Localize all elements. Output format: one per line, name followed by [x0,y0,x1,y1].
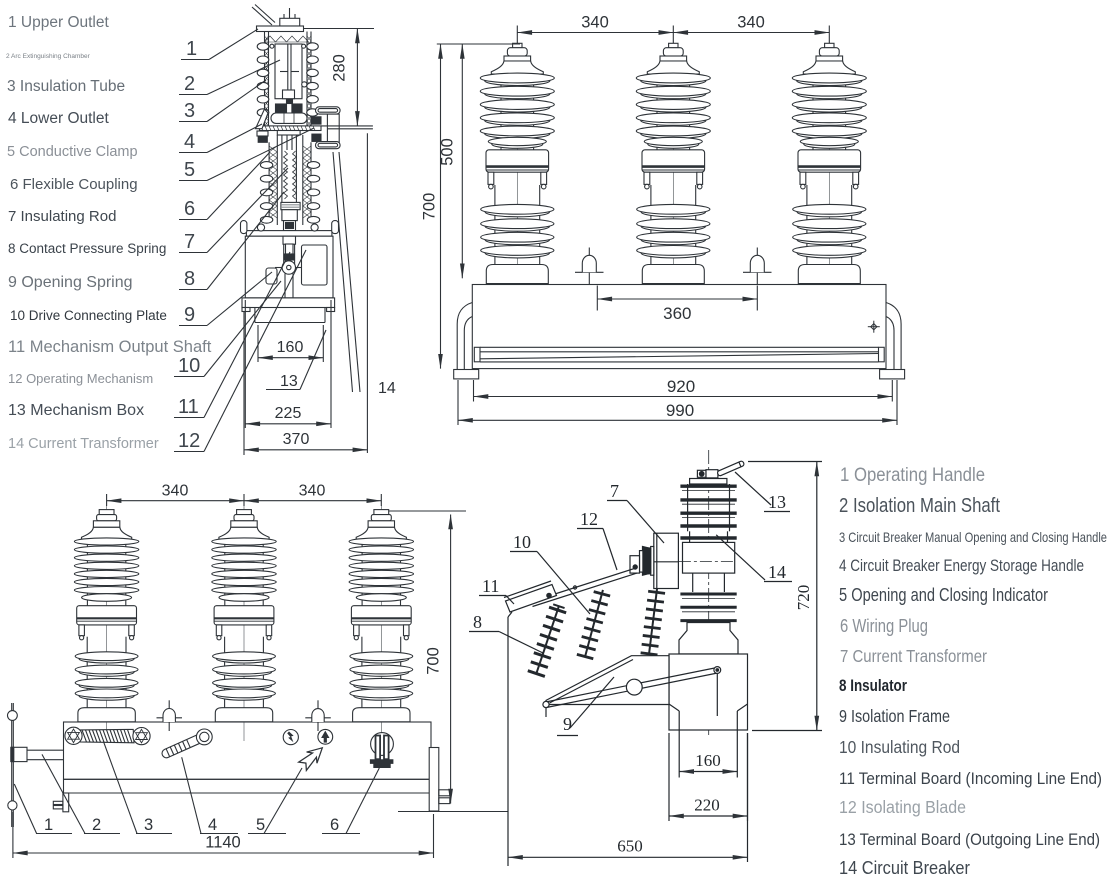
svg-text:700: 700 [421,193,439,221]
svg-text:7: 7 [610,481,619,501]
svg-text:225: 225 [275,405,302,422]
svg-text:370: 370 [283,431,310,448]
svg-text:2: 2 [92,816,101,834]
svg-text:6: 6 [184,198,195,220]
svg-text:700: 700 [425,647,443,675]
svg-text:8: 8 [473,612,482,632]
svg-text:12: 12 [178,430,200,452]
svg-text:11 Mechanism Output Shaft: 11 Mechanism Output Shaft [8,338,212,356]
svg-text:5 Opening and Closing Indicato: 5 Opening and Closing Indicator [839,585,1048,605]
svg-text:5 Conductive Clamp: 5 Conductive Clamp [7,144,138,160]
svg-text:6 Flexible Coupling: 6 Flexible Coupling [10,176,138,193]
svg-text:7 Current Transformer: 7 Current Transformer [840,646,987,666]
svg-text:4: 4 [208,816,217,834]
svg-text:3: 3 [144,816,153,834]
svg-text:12 Isolating Blade: 12 Isolating Blade [839,797,966,817]
svg-text:14: 14 [378,380,396,397]
svg-text:10: 10 [178,355,200,377]
svg-text:14 Current Transformer: 14 Current Transformer [8,436,159,452]
svg-text:340: 340 [299,483,326,500]
svg-text:8 Insulator: 8 Insulator [839,676,907,695]
svg-text:1140: 1140 [205,834,240,852]
svg-text:12 Operating Mechanism: 12 Operating Mechanism [8,371,153,386]
svg-text:990: 990 [666,401,694,420]
svg-text:1: 1 [44,816,53,834]
svg-text:1 Operating Handle: 1 Operating Handle [840,465,985,486]
svg-text:1 Upper Outlet: 1 Upper Outlet [8,14,109,31]
svg-text:7: 7 [184,231,195,253]
svg-text:10 Drive Connecting Plate: 10 Drive Connecting Plate [10,308,167,323]
svg-text:360: 360 [663,304,691,323]
svg-text:10: 10 [513,532,531,552]
svg-text:340: 340 [162,483,189,500]
svg-text:13: 13 [768,492,786,512]
svg-text:8: 8 [184,268,195,290]
svg-text:14 Circuit Breaker: 14 Circuit Breaker [839,858,970,878]
svg-text:4 Circuit Breaker Energy Stora: 4 Circuit Breaker Energy Storage Handle [839,556,1084,575]
svg-text:4: 4 [184,131,195,153]
svg-text:2 Arc Extinguishing Chamber: 2 Arc Extinguishing Chamber [6,53,91,60]
svg-text:10 Insulating Rod: 10 Insulating Rod [839,737,960,757]
svg-text:160: 160 [277,339,304,356]
svg-text:340: 340 [737,14,765,32]
svg-text:220: 220 [694,796,720,815]
svg-text:8 Contact Pressure Spring: 8 Contact Pressure Spring [8,241,166,256]
svg-text:2: 2 [184,73,195,95]
svg-text:11: 11 [482,576,499,596]
svg-text:13 Mechanism Box: 13 Mechanism Box [8,402,144,419]
svg-text:650: 650 [617,837,643,856]
svg-text:5: 5 [184,159,195,181]
svg-text:14: 14 [768,562,786,582]
svg-text:160: 160 [695,751,721,770]
svg-text:6 Wiring Plug: 6 Wiring Plug [840,616,928,636]
svg-text:12: 12 [580,509,598,529]
svg-text:11: 11 [178,396,199,418]
svg-text:2 Isolation Main Shaft: 2 Isolation Main Shaft [839,494,1000,517]
svg-text:3: 3 [184,100,195,122]
svg-text:280: 280 [330,54,348,82]
svg-text:720: 720 [794,585,813,611]
svg-text:3 Circuit Breaker Manual Openi: 3 Circuit Breaker Manual Opening and Clo… [839,529,1107,545]
svg-text:1: 1 [186,38,197,60]
svg-text:11 Terminal Board (Incoming Li: 11 Terminal Board (Incoming Line End) [839,769,1102,788]
svg-text:500: 500 [439,138,457,166]
svg-text:9: 9 [563,714,572,734]
svg-text:9: 9 [184,304,195,326]
svg-text:7 Insulating Rod: 7 Insulating Rod [8,208,116,225]
svg-text:13: 13 [280,373,298,390]
svg-text:5: 5 [256,816,265,834]
svg-text:920: 920 [667,377,695,396]
svg-text:4 Lower Outlet: 4 Lower Outlet [8,110,109,127]
svg-text:340: 340 [581,14,609,32]
svg-text:3 Insulation Tube: 3 Insulation Tube [7,78,125,95]
svg-text:6: 6 [330,816,339,834]
svg-text:9 Opening Spring: 9 Opening Spring [8,274,133,291]
svg-text:13 Terminal Board (Outgoing Li: 13 Terminal Board (Outgoing Line End) [839,831,1100,849]
svg-text:9 Isolation Frame: 9 Isolation Frame [839,706,950,726]
